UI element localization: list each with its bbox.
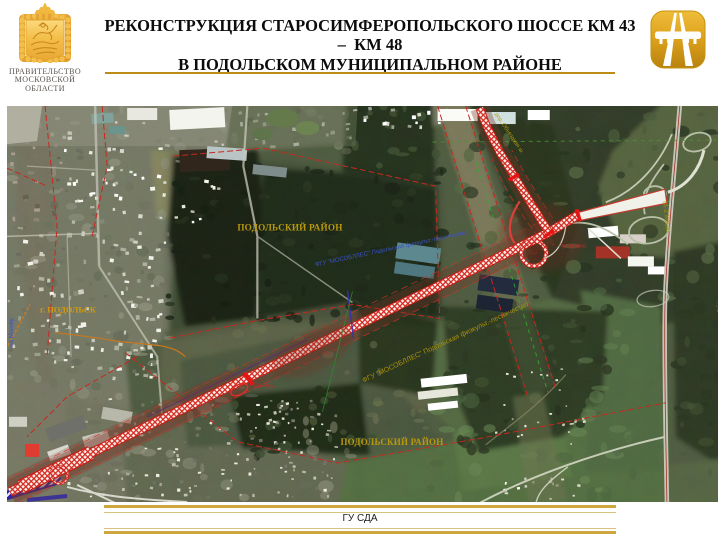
svg-text:Пучеровка: Пучеровка [559,243,587,249]
svg-text:Тоннель: Тоннель [252,384,273,390]
svg-text:ПОДОЛЬСКИЙ РАЙОН: ПОДОЛЬСКИЙ РАЙОН [237,222,342,232]
svg-text:на Москву: на Москву [9,318,15,346]
svg-text:ПОДОЛЬСКИЙ РАЙОН: ПОДОЛЬСКИЙ РАЙОН [340,437,443,447]
svg-text:г. ПОДОЛЬСК: г. ПОДОЛЬСК [40,305,97,315]
